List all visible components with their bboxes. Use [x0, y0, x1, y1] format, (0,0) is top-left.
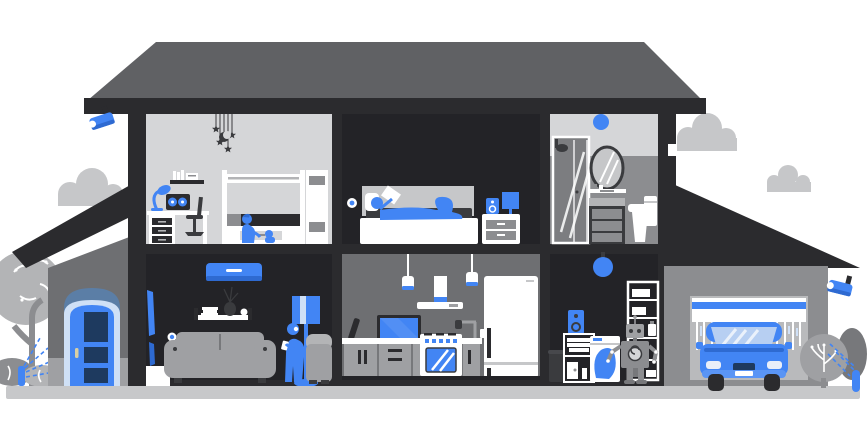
shower [552, 136, 590, 244]
garage-roof [664, 180, 860, 268]
ground [6, 386, 860, 399]
sofa [164, 332, 276, 383]
robot-head [626, 324, 644, 338]
kitchen [342, 254, 540, 380]
door-panel-top [84, 312, 108, 342]
cloud-right-1 [677, 113, 737, 151]
side-mirror-left [696, 342, 703, 349]
bathroom [550, 114, 658, 244]
smart-home-illustration [0, 0, 868, 441]
smart-light-bathroom [593, 114, 609, 130]
vanity-cabinet [589, 198, 625, 244]
license-plate [735, 371, 753, 376]
headlight-left [706, 361, 721, 369]
headlight-right [767, 361, 782, 369]
kitchen-floor [342, 376, 540, 380]
ac-unit [206, 263, 262, 281]
security-camera-right [825, 271, 855, 297]
bedroom [342, 114, 540, 244]
smart-speaker-utility [568, 310, 584, 334]
bedside-shelf-unit [306, 170, 328, 244]
nightstand [482, 214, 520, 244]
roof [88, 42, 702, 100]
washing-machine [590, 336, 620, 382]
scene-canvas [0, 0, 868, 441]
armchair [306, 334, 332, 384]
wheel-right [764, 374, 780, 391]
door-panel-bottom [84, 368, 108, 383]
bed-base [360, 218, 478, 244]
trash-bin [548, 350, 564, 382]
wall-vent [668, 144, 676, 156]
boombox [166, 194, 190, 210]
pillow [227, 214, 241, 226]
living-room [146, 254, 332, 387]
smart-speaker-bedroom [486, 198, 499, 214]
door-panel-middle [84, 347, 108, 363]
smart-sensor-bedroom [347, 198, 357, 208]
cloud-right-2 [767, 165, 811, 192]
shower-door-knob [576, 191, 579, 194]
vase [224, 302, 236, 316]
grille [733, 363, 755, 371]
utility-room [548, 252, 658, 384]
fridge [484, 276, 538, 378]
water-jet [852, 370, 860, 392]
door-handle [75, 348, 79, 358]
eave-band [84, 98, 706, 114]
mirror [591, 147, 623, 189]
side-mirror-right [785, 342, 792, 349]
kids-room [146, 114, 332, 244]
front-door [64, 288, 120, 386]
stove-oven [420, 333, 462, 376]
wheel-left [708, 374, 724, 391]
